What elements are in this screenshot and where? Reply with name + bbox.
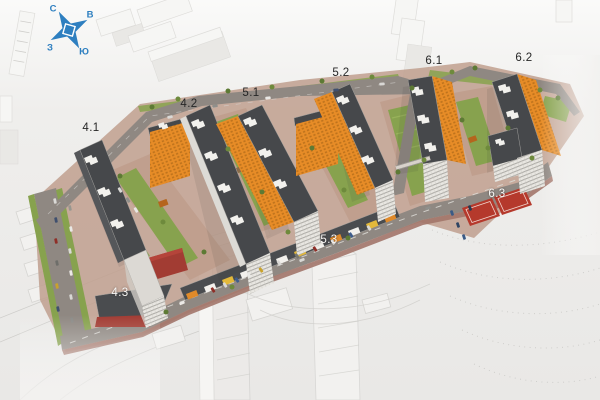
site-plan-scene: . [0, 0, 600, 400]
compass-rose-icon [40, 1, 97, 58]
masterplan-render: . [0, 0, 600, 400]
